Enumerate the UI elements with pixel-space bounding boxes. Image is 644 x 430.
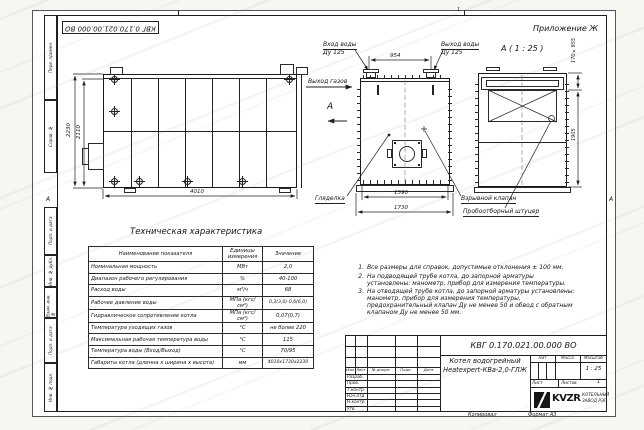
view-a-base (474, 187, 571, 193)
tb-col-izm: Изм (345, 368, 355, 372)
fitting-bolt (136, 178, 143, 185)
zone-marker-right: А (609, 197, 613, 203)
table-row: Максимальная рабочая температура воды°С1… (89, 334, 314, 346)
tb-mass-label: Масса (555, 356, 580, 360)
logo-caption-1: КОТЕЛЬНЫЙ (582, 393, 609, 397)
col-header-value: Значение (263, 247, 314, 262)
drawing-sheet-canvas: Перв. примен. Справ. № Подп. и дата Инв.… (0, 0, 644, 430)
margin-label: Справ. № (48, 126, 53, 147)
fitting-bolt (111, 108, 118, 115)
side-view-top-line (104, 78, 296, 79)
port-bolt-dot (418, 164, 420, 166)
param-units: °С (223, 322, 263, 334)
side-view-mid-line (104, 131, 296, 132)
table-row: Номинальная мощностьМВт2,0 (89, 262, 314, 274)
water-inlet-pipe (366, 72, 376, 78)
param-name: Максимальная рабочая температура воды (89, 334, 223, 346)
tb-line (345, 406, 440, 407)
margin-label: Подп. и дата (48, 326, 53, 355)
param-name: Температура воды (Вход/Выход) (89, 345, 223, 357)
margin-box-podp-data-2: Подп. и дата (44, 318, 57, 363)
lifting-lug (280, 64, 294, 75)
param-units: мм (223, 357, 263, 369)
dim-170x955: 170×955 (572, 34, 577, 66)
table-row: Расход водым³/ч68 (89, 285, 314, 297)
param-units: м³/ч (223, 285, 263, 297)
tb-line (530, 355, 531, 412)
note-text: На подводящей трубе котла, до запорной а… (367, 273, 579, 287)
param-name: Расход воды (89, 285, 223, 297)
port-bolt-dot (418, 142, 420, 144)
param-value: 2,0 (263, 262, 314, 274)
margin-label: Взам. инв. № (46, 288, 56, 317)
param-name: Габариты котла (длинна х ширина х высота… (89, 357, 223, 369)
bolt-ticks (357, 83, 361, 181)
note-item: 1.Все размеры для справок, допустимые от… (356, 264, 584, 271)
port-bolt-dot (394, 164, 396, 166)
burner-flange (88, 143, 104, 170)
table-row: Гидравлическое сопротивление котлаМПа (к… (89, 309, 314, 322)
tb-col-docum: № докум. (367, 368, 395, 372)
param-value: 115 (263, 334, 314, 346)
dim-954: 954 (390, 54, 401, 60)
tb-line (395, 335, 396, 412)
rotated-docnumber-box: КВГ 0.170.021.00.000 ВО (62, 21, 159, 34)
tb-line (530, 362, 607, 363)
burner-port-circle (399, 146, 415, 162)
tb-scale-label: Масштаб (580, 356, 607, 360)
margin-label: Подп. и дата (48, 217, 53, 246)
tb-doc-number: КВГ 0.170.021.00.000 ВО (440, 341, 607, 350)
panel-line (158, 79, 159, 187)
port-tab (422, 149, 427, 158)
tb-row-razrab: Разраб. (347, 375, 363, 379)
tb-col-list: Лист (355, 368, 367, 372)
panel-line (266, 79, 267, 187)
fold-mark (464, 10, 465, 15)
format-label: Формат А3 (528, 413, 556, 418)
kvzr-logo-text: KVZR (552, 394, 580, 405)
margin-box-inv-podl: Инв. № подл. (44, 363, 57, 412)
burner-flange-plate (82, 148, 89, 165)
water-outlet-pipe (426, 72, 436, 78)
support-foot (124, 188, 136, 193)
tech-table-header-row: Наименование показателя Единицы измерени… (89, 247, 314, 262)
param-value: 0,3(3,0)-0,6(6,0) (263, 296, 314, 309)
dim-2110: 2110 (77, 118, 83, 146)
flue-duct-line (301, 74, 302, 188)
dim-1590: 1590 (394, 191, 408, 197)
tb-line (530, 387, 607, 388)
panel-line (239, 79, 240, 187)
col-header-name: Наименование показателя (89, 247, 223, 262)
param-value: 40-100 (263, 273, 314, 285)
panel-line (212, 79, 213, 187)
view-direction-letter: А (327, 103, 333, 112)
fitting-bolt (286, 76, 293, 83)
margin-label: Перв. примен. (48, 42, 53, 73)
tb-line (538, 362, 539, 379)
tb-sheet-label: Лист (532, 381, 543, 385)
water-outlet-callout: Выход воды Ду 125 (441, 42, 479, 56)
tb-row-tkontr: Т.контр. (347, 388, 365, 392)
copied-label: Копировал (468, 413, 497, 418)
note-item: 3.На отводящей трубе котла, до запорной … (356, 288, 584, 316)
tb-row-nkontr: Н.контр. (347, 400, 366, 404)
param-value: 4010х1730х2230 (263, 357, 314, 369)
tb-sheets-value: 1 (597, 380, 600, 385)
appendix-label: Приложение Ж (533, 25, 598, 33)
support-foot (279, 188, 291, 193)
logo-caption-2: ЗАВОД РЭП (582, 399, 607, 403)
rotated-docnumber: КВГ 0.170.021.00.000 ВО (65, 24, 156, 31)
view-a-caption: А ( 1 : 25 ) (501, 45, 543, 53)
explosion-valve-panel (488, 90, 557, 122)
panel-line (131, 79, 132, 187)
param-units: °С (223, 334, 263, 346)
margin-box-vzam-inv: Взам. инв. № (44, 287, 57, 318)
port-tab (387, 149, 392, 158)
water-outlet-dn: Ду 125 (441, 50, 479, 56)
tb-product-line1: Котел водогрейный (440, 358, 530, 365)
front-view-body (360, 78, 450, 185)
tb-row-prov: Пров. (347, 381, 359, 385)
tb-row-utv: Утв. (347, 407, 356, 411)
fitting-bolt (184, 178, 191, 185)
dim-4010: 4010 (190, 190, 204, 196)
tb-line (558, 379, 559, 387)
dim-1905: 1905 (572, 122, 577, 148)
water-inlet-callout: Вход воды Ду 125 (323, 42, 357, 56)
note-number: 1. (356, 264, 364, 271)
note-number: 2. (356, 273, 364, 287)
explosion-valve-label: Взрывной клапан (461, 196, 516, 204)
tech-table: Наименование показателя Единицы измерени… (88, 246, 314, 369)
fitting-bolt (239, 178, 246, 185)
front-view-roof-line (361, 81, 449, 82)
param-units: МВт (223, 262, 263, 274)
tech-table-title: Техническая характеристика (130, 228, 262, 237)
tb-line (345, 380, 440, 381)
param-units: МПа (кгс/см²) (223, 296, 263, 309)
tb-line (345, 357, 440, 358)
note-text: На отводящей трубе котла, до запорной ар… (367, 288, 579, 316)
param-value: 68 (263, 285, 314, 297)
panel-line (185, 79, 186, 187)
tb-product-line2: Heatexpert-КВа-2,0-ГЛЖ (440, 367, 530, 374)
param-name: Диапазон рабочего регулирования (89, 273, 223, 285)
table-row: Температура уходящих газов°Сне более 220 (89, 322, 314, 334)
param-name: Рабочее давление воды (89, 296, 223, 309)
param-name: Гидравлическое сопротивление котла (89, 309, 223, 322)
internal-bar (432, 85, 434, 95)
fitting-bolt (111, 178, 118, 185)
fold-mark (178, 10, 179, 15)
view-a-mid-line (479, 142, 566, 143)
table-row: Рабочее давление водыМПа (кгс/см²)0,3(3,… (89, 296, 314, 309)
dim-1730: 1730 (394, 206, 408, 212)
note-number: 3. (356, 288, 364, 316)
bolt-ticks (448, 83, 452, 181)
port-bolt-dot (394, 142, 396, 144)
lifting-lug (110, 67, 123, 75)
table-row: Габариты котла (длинна х ширина х высота… (89, 357, 314, 369)
tb-sheets-label: Листов (561, 381, 577, 385)
kvzr-logo-icon (534, 392, 550, 408)
note-text: Все размеры для справок, допустимые откл… (367, 264, 579, 271)
bolt-ticks (363, 180, 447, 184)
table-row: Диапазон рабочего регулирования%40-100 (89, 273, 314, 285)
gas-outlet-label: Выход газов (308, 79, 347, 85)
tb-scale-value: 1 : 25 (580, 367, 607, 373)
top-flange (543, 67, 557, 71)
internal-bar (377, 85, 379, 95)
notes-block: 1.Все размеры для справок, допустимые от… (356, 264, 584, 318)
bolt-ticks (565, 80, 569, 183)
tb-row-nachotd: Нач.отд (347, 394, 364, 398)
margin-box-sprav-no: Справ. № (44, 100, 57, 173)
bolt-ticks (475, 80, 479, 183)
note-item: 2.На подводящей трубе котла, до запорной… (356, 273, 584, 287)
param-value: 70/95 (263, 345, 314, 357)
margin-box-podp-data-1: Подп. и дата (44, 207, 57, 255)
tb-line (345, 346, 440, 347)
zone-marker-left: А (46, 197, 50, 203)
param-value: не более 220 (263, 322, 314, 334)
tb-col-podp: Подп. (395, 368, 417, 372)
water-inlet-dn: Ду 125 (323, 50, 357, 56)
tb-line (546, 362, 547, 379)
flue-stub (296, 67, 308, 75)
param-name: Температура уходящих газов (89, 322, 223, 334)
zone-marker-top: 1 (457, 8, 460, 13)
param-units: °С (223, 345, 263, 357)
margin-label: Инв. № подл. (48, 373, 53, 403)
sampler-label: Пробоотборный штуцер (463, 209, 539, 217)
tb-lit-label: Лит (530, 356, 555, 360)
param-units: МПа (кгс/см²) (223, 309, 263, 322)
margin-box-perv-primen: Перв. примен. (44, 15, 57, 100)
tb-line (367, 335, 368, 412)
param-value: 0,07(0,7) (263, 309, 314, 322)
fitting-bolt (111, 76, 118, 83)
top-flange (486, 67, 500, 71)
margin-box-inv-dubl: Инв. № дубл. (44, 255, 57, 287)
sight-glass-label: Гляделка (315, 196, 345, 204)
tb-col-data: Дата (417, 368, 440, 372)
duct-opening-inner (486, 80, 559, 87)
margin-label: Инв. № дубл. (48, 256, 53, 285)
param-name: Номинальная мощность (89, 262, 223, 274)
param-units: % (223, 273, 263, 285)
col-header-units: Единицы измерения (223, 247, 263, 262)
dim-2230: 2230 (67, 116, 73, 144)
table-row: Температура воды (Вход/Выход)°С70/95 (89, 345, 314, 357)
tb-line (417, 335, 418, 412)
